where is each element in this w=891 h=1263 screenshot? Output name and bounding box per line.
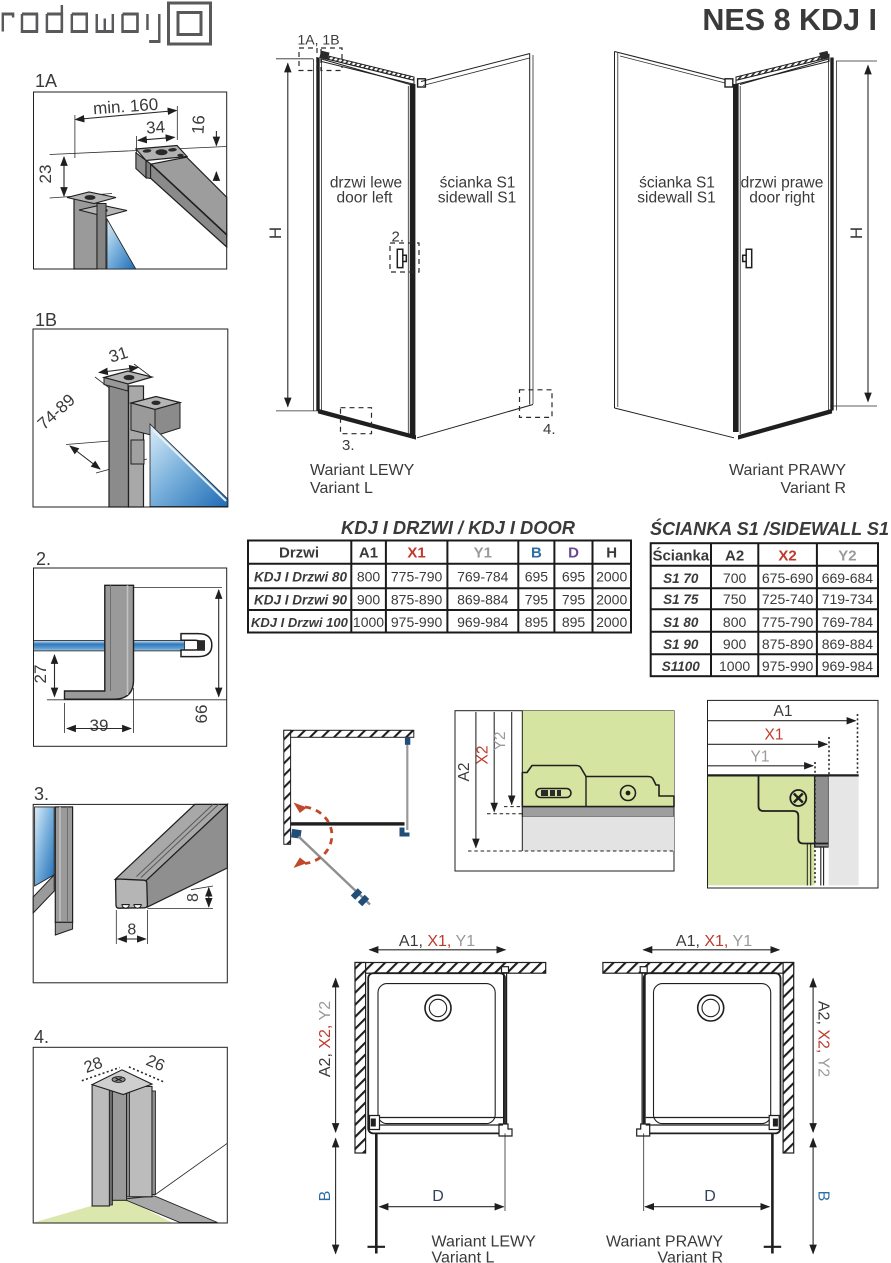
svg-text:B: B — [531, 545, 542, 562]
svg-text:795: 795 — [562, 592, 586, 608]
svg-text:775-790: 775-790 — [762, 614, 814, 630]
svg-text:875-890: 875-890 — [762, 636, 814, 652]
svg-text:KDJ I Drzwi 100: KDJ I Drzwi 100 — [251, 615, 349, 630]
svg-text:Y2: Y2 — [492, 732, 509, 751]
svg-text:Variant R: Variant R — [780, 480, 846, 497]
svg-text:X1: X1 — [765, 727, 784, 744]
svg-text:769-784: 769-784 — [822, 614, 874, 630]
svg-text:KDJ I Drzwi 90: KDJ I Drzwi 90 — [254, 593, 348, 608]
svg-text:2000: 2000 — [596, 592, 627, 608]
svg-text:895: 895 — [525, 614, 549, 630]
svg-text:Drzwi: Drzwi — [279, 545, 319, 562]
svg-text:695: 695 — [525, 569, 549, 585]
svg-text:X2: X2 — [778, 548, 796, 565]
svg-text:695: 695 — [562, 569, 586, 585]
svg-text:4.: 4. — [543, 421, 556, 438]
svg-text:8: 8 — [127, 922, 136, 939]
svg-text:34: 34 — [146, 117, 166, 137]
svg-text:Wariant LEWY: Wariant LEWY — [432, 1234, 537, 1251]
svg-text:A1, X1, Y1: A1, X1, Y1 — [399, 933, 475, 950]
svg-text:A1: A1 — [774, 703, 793, 720]
svg-text:A1, X1, Y1: A1, X1, Y1 — [676, 933, 752, 950]
svg-text:Ścianka: Ścianka — [652, 547, 709, 565]
svg-text:975-990: 975-990 — [762, 658, 814, 674]
svg-text:1A: 1A — [35, 71, 57, 91]
svg-text:2000: 2000 — [596, 614, 627, 630]
svg-text:900: 900 — [357, 592, 381, 608]
svg-text:X1: X1 — [407, 545, 425, 562]
svg-text:Variant L: Variant L — [432, 1250, 495, 1263]
svg-text:ŚCIANKA S1 /SIDEWALL S1: ŚCIANKA S1 /SIDEWALL S1 — [650, 518, 889, 539]
svg-text:875-890: 875-890 — [391, 592, 443, 608]
svg-text:769-784: 769-784 — [457, 569, 509, 585]
svg-text:Variant R: Variant R — [657, 1250, 723, 1263]
svg-text:719-734: 719-734 — [822, 591, 874, 607]
svg-text:D: D — [432, 1188, 444, 1205]
svg-text:KDJ I DRZWI / KDJ I DOOR: KDJ I DRZWI / KDJ I DOOR — [341, 518, 575, 538]
svg-text:B: B — [815, 1191, 832, 1202]
svg-text:A2, X2, Y2: A2, X2, Y2 — [317, 1001, 334, 1077]
svg-text:800: 800 — [723, 614, 747, 630]
svg-text:1B: 1B — [35, 310, 57, 330]
svg-text:900: 900 — [723, 636, 747, 652]
svg-text:2000: 2000 — [596, 569, 627, 585]
svg-text:975-990: 975-990 — [391, 614, 443, 630]
svg-text:H: H — [606, 545, 617, 562]
svg-text:A2: A2 — [456, 763, 473, 782]
svg-text:S1 90: S1 90 — [663, 637, 699, 652]
svg-text:door right: door right — [749, 190, 815, 207]
svg-text:Wariant LEWY: Wariant LEWY — [310, 462, 415, 479]
svg-text:750: 750 — [723, 591, 747, 607]
svg-text:23: 23 — [36, 165, 55, 184]
svg-text:Wariant PRAWY: Wariant PRAWY — [606, 1234, 723, 1251]
svg-text:969-984: 969-984 — [457, 614, 509, 630]
svg-text:869-884: 869-884 — [457, 592, 509, 608]
svg-text:D: D — [568, 545, 579, 562]
svg-text:sidewall S1: sidewall S1 — [637, 190, 715, 207]
svg-text:H: H — [847, 227, 866, 239]
svg-text:8: 8 — [185, 893, 202, 902]
svg-text:Y2: Y2 — [838, 548, 856, 565]
svg-text:66: 66 — [192, 705, 211, 724]
svg-text:1000: 1000 — [353, 614, 384, 630]
svg-text:S1 70: S1 70 — [663, 571, 699, 586]
svg-text:1000: 1000 — [719, 658, 750, 674]
svg-text:sidewall S1: sidewall S1 — [438, 190, 516, 207]
svg-text:39: 39 — [90, 716, 109, 735]
svg-text:16: 16 — [188, 115, 208, 135]
svg-text:B: B — [317, 1191, 334, 1202]
svg-text:NES 8 KDJ I: NES 8 KDJ I — [702, 3, 877, 37]
svg-text:X2: X2 — [475, 746, 492, 765]
svg-text:795: 795 — [525, 592, 549, 608]
svg-text:Wariant PRAWY: Wariant PRAWY — [729, 462, 846, 479]
svg-text:3.: 3. — [34, 784, 49, 804]
svg-text:27: 27 — [31, 665, 50, 684]
svg-text:S1 75: S1 75 — [663, 592, 699, 607]
svg-text:S1100: S1100 — [662, 659, 701, 674]
svg-text:675-690: 675-690 — [762, 570, 814, 586]
svg-text:door left: door left — [336, 190, 393, 207]
svg-text:H: H — [266, 227, 285, 239]
svg-text:775-790: 775-790 — [391, 569, 443, 585]
svg-text:2.: 2. — [36, 549, 51, 569]
svg-text:3.: 3. — [342, 437, 355, 454]
svg-text:A2, X2, Y2: A2, X2, Y2 — [815, 1001, 832, 1077]
svg-text:669-684: 669-684 — [822, 570, 874, 586]
svg-text:D: D — [704, 1188, 716, 1205]
svg-text:4.: 4. — [34, 1027, 49, 1047]
svg-text:S1 80: S1 80 — [663, 615, 699, 630]
svg-text:700: 700 — [723, 570, 747, 586]
svg-text:Y1: Y1 — [751, 749, 770, 766]
svg-text:KDJ I Drzwi 80: KDJ I Drzwi 80 — [254, 570, 348, 585]
svg-text:A2: A2 — [725, 548, 744, 565]
svg-text:725-740: 725-740 — [762, 591, 814, 607]
svg-text:895: 895 — [562, 614, 586, 630]
svg-text:800: 800 — [357, 569, 381, 585]
svg-text:1A, 1B: 1A, 1B — [298, 32, 340, 48]
svg-text:969-984: 969-984 — [822, 658, 874, 674]
svg-text:869-884: 869-884 — [822, 636, 874, 652]
svg-text:Y1: Y1 — [474, 545, 492, 562]
svg-text:A1: A1 — [359, 545, 378, 562]
svg-text:Variant L: Variant L — [310, 480, 373, 497]
